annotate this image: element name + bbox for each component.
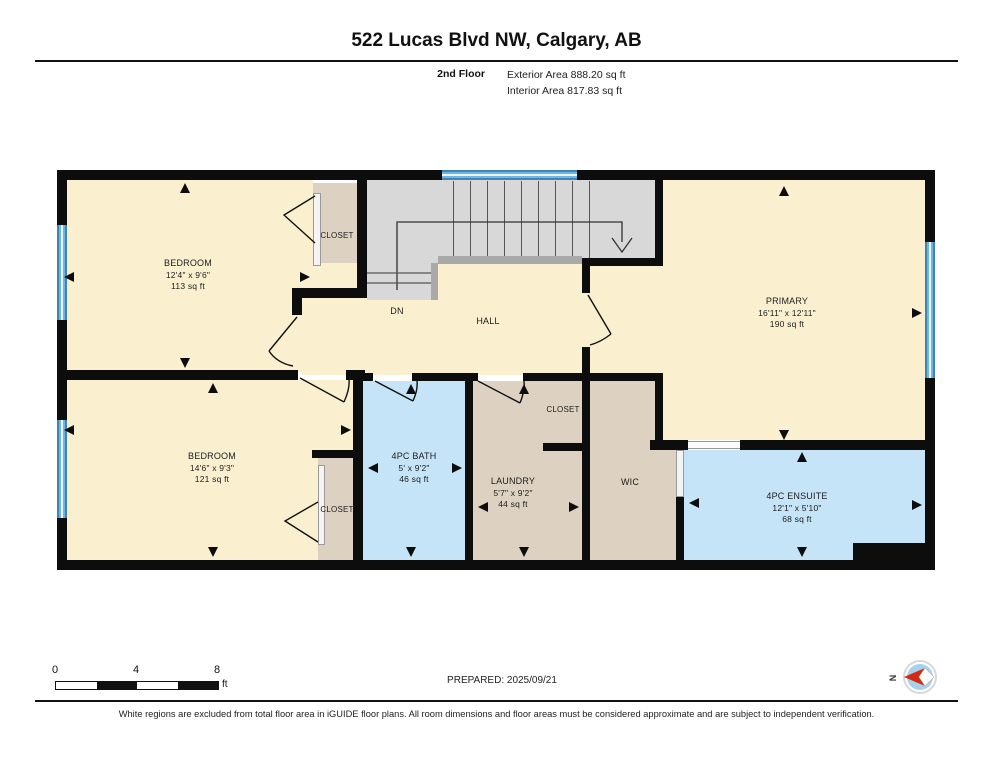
room-name: 4PC BATH: [354, 451, 474, 463]
disclaimer-text: White regions are excluded from total fl…: [0, 709, 993, 719]
window: [57, 225, 67, 320]
interior-area: Interior Area 817.83 sq ft: [507, 85, 622, 97]
room-dims: 12'1" x 5'10": [737, 503, 857, 514]
room-dims: 12'4" x 9'6": [128, 270, 248, 281]
compass-ring: [904, 661, 936, 693]
stairs-dn-label: DN: [377, 306, 417, 318]
room-area: 113 sq ft: [128, 281, 248, 292]
room-name: PRIMARY: [727, 296, 847, 308]
scale-unit: ft: [222, 679, 228, 690]
room-dims: 5' x 9'2": [354, 463, 474, 474]
compass-needle-red: [904, 668, 925, 686]
compass-north-label: N: [888, 675, 898, 682]
page-title: 522 Lucas Blvd NW, Calgary, AB: [0, 30, 993, 52]
window: [925, 242, 935, 378]
bedroom1-label: BEDROOM 12'4" x 9'6" 113 sq ft: [128, 258, 248, 292]
footer-divider: [35, 700, 958, 702]
exterior-area: Exterior Area 888.20 sq ft: [507, 69, 625, 81]
compass-face: [907, 664, 933, 690]
room-area: 190 sq ft: [727, 319, 847, 330]
scale-bar: [55, 681, 219, 690]
scale-segment: [137, 682, 178, 689]
hall-label: HALL: [448, 316, 528, 328]
room-area: 121 sq ft: [152, 474, 272, 485]
scale-segment: [178, 682, 219, 689]
prepared-date: PREPARED: 2025/09/21: [372, 675, 632, 686]
ensuite-label: 4PC ENSUITE 12'1" x 5'10" 68 sq ft: [737, 491, 857, 525]
scale-tick-0: 0: [48, 664, 62, 676]
compass-needle-white: [919, 668, 934, 686]
room-name: BEDROOM: [152, 451, 272, 463]
primary-label: PRIMARY 16'11" x 12'11" 190 sq ft: [727, 296, 847, 330]
scale-tick-4: 4: [129, 664, 143, 676]
room-area: 44 sq ft: [453, 499, 573, 510]
compass-icon: N: [888, 661, 936, 693]
room-name: BEDROOM: [128, 258, 248, 270]
closet2-label: CLOSET: [307, 505, 367, 515]
room-name: LAUNDRY: [453, 476, 573, 488]
room-dims: 14'6" x 9'3": [152, 463, 272, 474]
scale-segment: [97, 682, 138, 689]
laundry-closet-label: CLOSET: [528, 405, 598, 415]
room-area: 68 sq ft: [737, 514, 857, 525]
window: [442, 170, 577, 180]
room-dims: 16'11" x 12'11": [727, 308, 847, 319]
room-dims: 5'7" x 9'2": [453, 488, 573, 499]
window: [57, 420, 67, 518]
scale-segment: [56, 682, 97, 689]
floor-plan-page: 522 Lucas Blvd NW, Calgary, AB 2nd Floor…: [0, 0, 993, 768]
floor-label: 2nd Floor: [300, 68, 485, 80]
header-divider: [35, 60, 958, 62]
wic-label: WIC: [600, 477, 660, 489]
closet1-label: CLOSET: [307, 231, 367, 241]
room-name: 4PC ENSUITE: [737, 491, 857, 503]
scale-tick-8: 8: [210, 664, 224, 676]
laundry-label: LAUNDRY 5'7" x 9'2" 44 sq ft: [453, 476, 573, 510]
bedroom2-label: BEDROOM 14'6" x 9'3" 121 sq ft: [152, 451, 272, 485]
